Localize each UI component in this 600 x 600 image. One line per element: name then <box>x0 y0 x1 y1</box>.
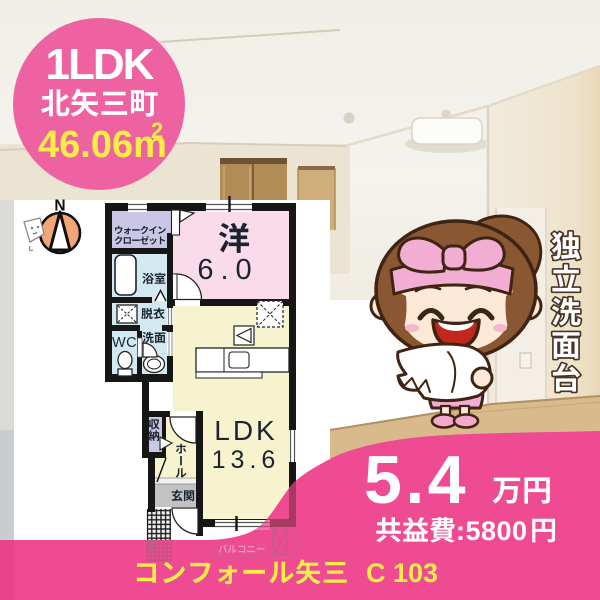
svg-text:46.06m: 46.06m <box>38 124 167 166</box>
svg-text:1LDK: 1LDK <box>46 40 155 89</box>
svg-text:2: 2 <box>151 118 163 143</box>
